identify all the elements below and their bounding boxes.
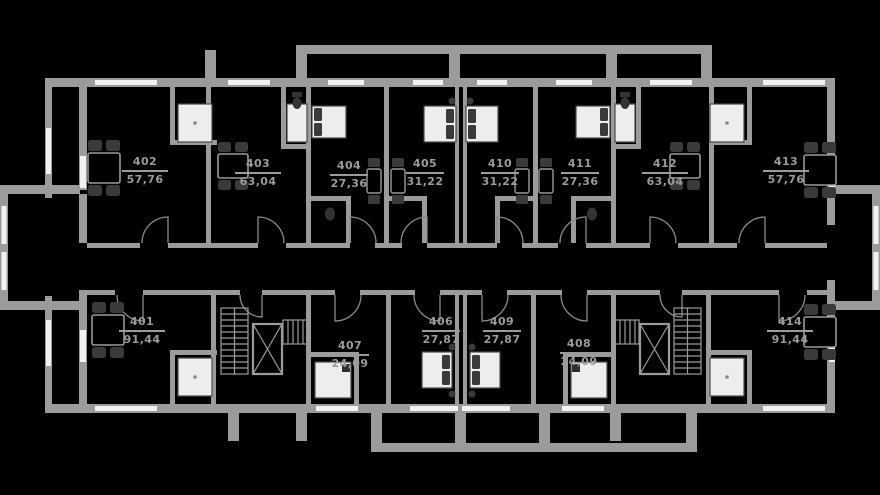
unit-label-402: 402 57,76	[122, 156, 168, 186]
bed-405	[424, 106, 456, 142]
unit-number: 414	[767, 316, 813, 329]
unit-area: 63,04	[235, 176, 281, 189]
unit-number: 407	[331, 340, 369, 353]
unit-label-413: 413 57,76	[763, 156, 809, 186]
unit-label-409: 409 27,87	[483, 316, 521, 346]
bed-411	[576, 106, 610, 138]
unit-area: 91,44	[119, 334, 165, 347]
unit-area: 57,76	[122, 174, 168, 187]
unit-area: 24,09	[560, 356, 598, 369]
unit-area: 31,22	[406, 176, 444, 189]
label-divider	[763, 170, 809, 172]
unit-area: 27,36	[561, 176, 599, 189]
label-divider	[422, 330, 460, 332]
unit-label-401: 401 91,44	[119, 316, 165, 346]
unit-label-408: 408 24,09	[560, 338, 598, 368]
floor-plan-drawing	[0, 0, 880, 495]
unit-number: 409	[483, 316, 521, 329]
label-divider	[560, 352, 598, 354]
unit-label-403: 403 63,04	[235, 158, 281, 188]
unit-label-412: 412 63,04	[642, 158, 688, 188]
unit-area: 27,87	[422, 334, 460, 347]
bed-404	[312, 106, 346, 138]
unit-number: 402	[122, 156, 168, 169]
unit-number: 403	[235, 158, 281, 171]
label-divider	[235, 172, 281, 174]
label-divider	[561, 172, 599, 174]
label-divider	[119, 330, 165, 332]
label-divider	[767, 330, 813, 332]
stool-table-411	[539, 158, 553, 204]
unit-number: 410	[481, 158, 519, 171]
unit-label-405: 405 31,22	[406, 158, 444, 188]
bed-410	[466, 106, 498, 142]
unit-area: 27,36	[330, 178, 368, 191]
label-divider	[642, 172, 688, 174]
unit-label-410: 410 31,22	[481, 158, 519, 188]
unit-label-407: 407 24,09	[331, 340, 369, 370]
unit-label-411: 411 27,36	[561, 158, 599, 188]
unit-number: 405	[406, 158, 444, 171]
label-divider	[481, 172, 519, 174]
label-divider	[331, 354, 369, 356]
unit-number: 411	[561, 158, 599, 171]
bed-406	[422, 352, 452, 388]
stool-table-405	[391, 158, 405, 204]
label-divider	[483, 330, 521, 332]
unit-area: 63,04	[642, 176, 688, 189]
label-divider	[406, 172, 444, 174]
unit-area: 57,76	[763, 174, 809, 187]
bed-409	[470, 352, 500, 388]
unit-label-404: 404 27,36	[330, 160, 368, 190]
unit-area: 24,09	[331, 358, 369, 371]
unit-number: 412	[642, 158, 688, 171]
label-divider	[330, 174, 368, 176]
unit-label-406: 406 27,87	[422, 316, 460, 346]
unit-label-414: 414 91,44	[767, 316, 813, 346]
unit-area: 31,22	[481, 176, 519, 189]
unit-area: 91,44	[767, 334, 813, 347]
unit-number: 401	[119, 316, 165, 329]
unit-number: 406	[422, 316, 460, 329]
unit-number: 408	[560, 338, 598, 351]
floor-plan: 401 91,44 402 57,76 403 63,04 404 27,36 …	[0, 0, 880, 495]
stool-table-404	[367, 158, 381, 204]
unit-area: 27,87	[483, 334, 521, 347]
unit-number: 413	[763, 156, 809, 169]
label-divider	[122, 170, 168, 172]
unit-number: 404	[330, 160, 368, 173]
